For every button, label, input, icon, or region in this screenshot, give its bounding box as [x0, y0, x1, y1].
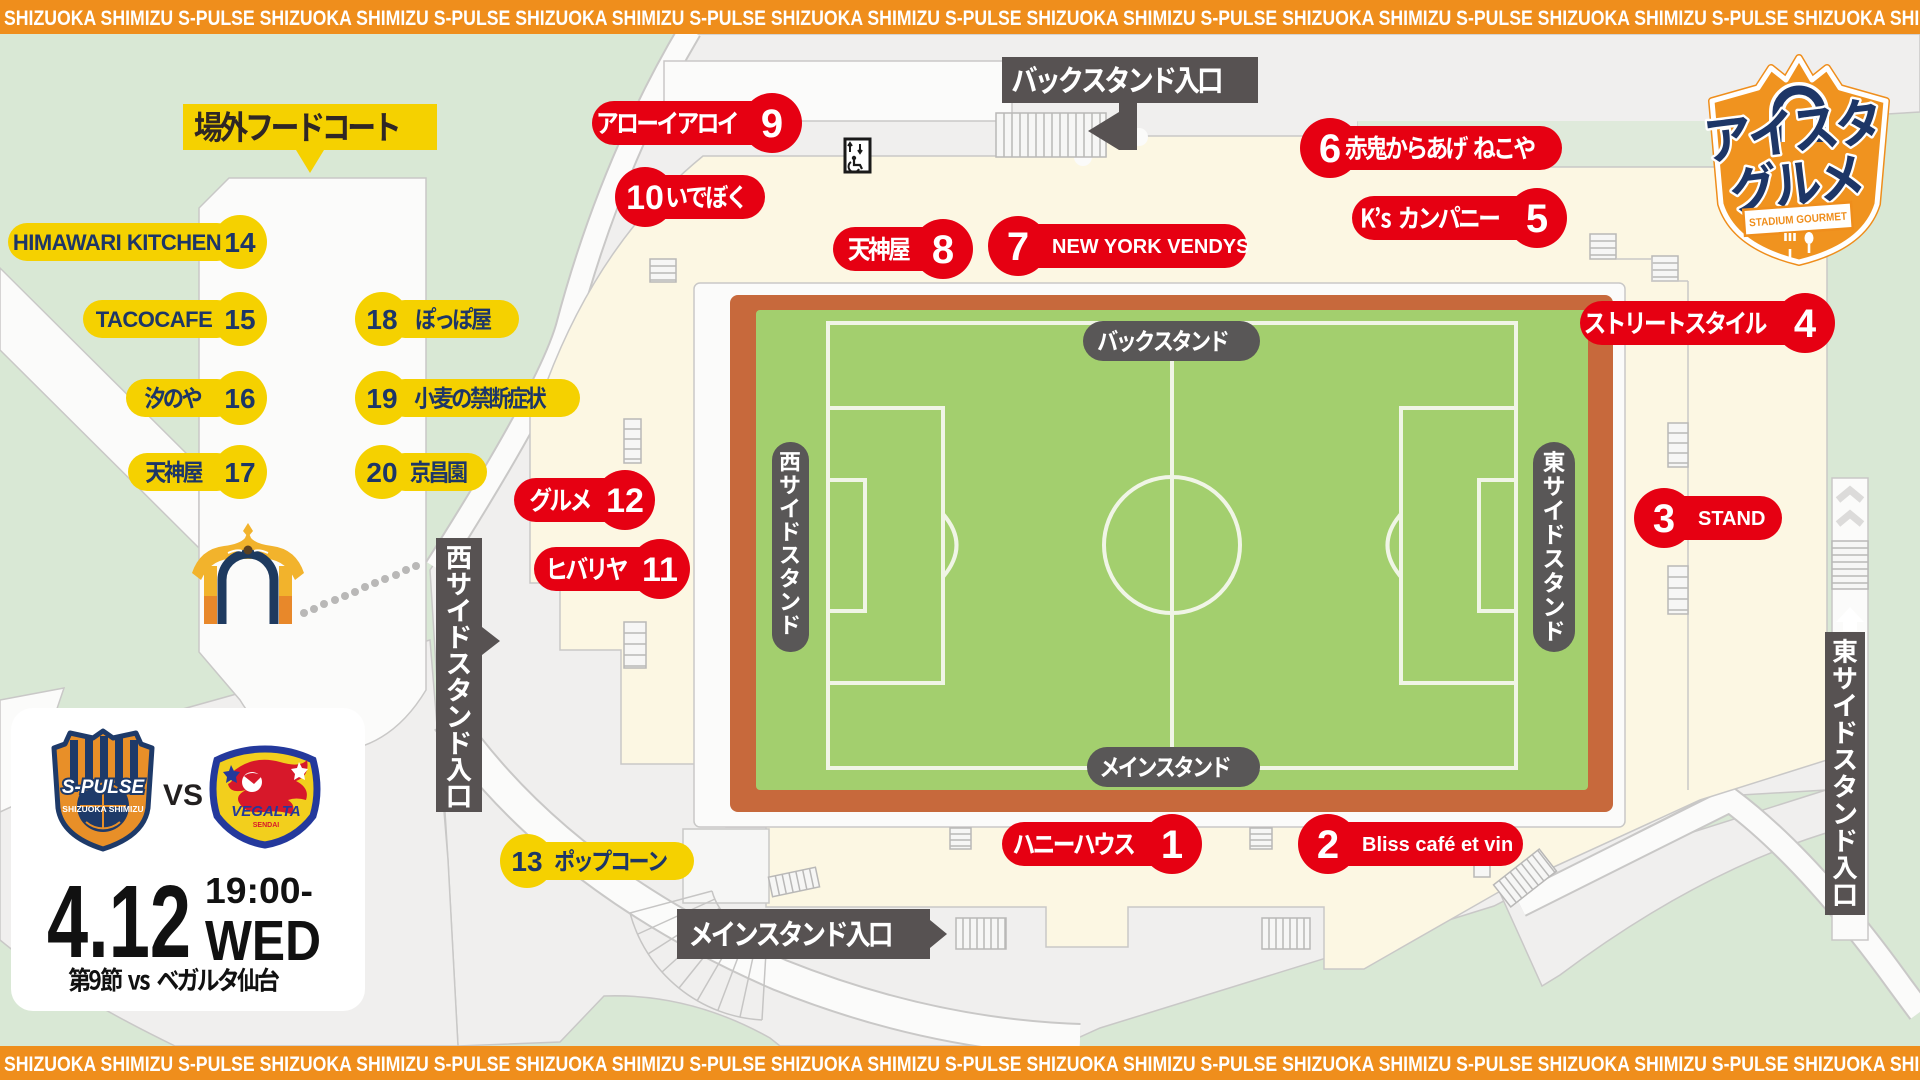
svg-text:Bliss café et vin: Bliss café et vin [1362, 834, 1513, 856]
svg-text:SHIZUOKA SHIMIZU S-PULSE SHIZU: SHIZUOKA SHIMIZU S-PULSE SHIZUOKA SHIMIZ… [4, 7, 1920, 30]
svg-text:18: 18 [366, 304, 397, 335]
svg-text:VEGALTA: VEGALTA [231, 803, 300, 820]
svg-text:19:00-: 19:00- [205, 870, 313, 911]
svg-text:19: 19 [366, 383, 397, 414]
svg-text:HIMAWARI KITCHEN: HIMAWARI KITCHEN [13, 230, 221, 255]
svg-text:10: 10 [626, 179, 664, 217]
svg-text:S-PULSE: S-PULSE [62, 777, 146, 798]
svg-text:8: 8 [932, 228, 954, 272]
svg-text:12: 12 [606, 482, 644, 520]
svg-text:SENDAI: SENDAI [253, 822, 280, 829]
svg-text:16: 16 [224, 383, 255, 414]
svg-text:14: 14 [224, 227, 256, 258]
svg-text:4.12: 4.12 [47, 864, 191, 979]
svg-text:NEW YORK VENDYS: NEW YORK VENDYS [1052, 236, 1249, 258]
svg-text:3: 3 [1653, 497, 1675, 541]
svg-text:4: 4 [1794, 302, 1817, 346]
svg-text:SHIZUOKA SHIMIZU S-PULSE SHIZU: SHIZUOKA SHIMIZU S-PULSE SHIZUOKA SHIMIZ… [4, 1053, 1920, 1076]
svg-text:11: 11 [642, 551, 678, 589]
svg-text:STAND: STAND [1698, 508, 1765, 530]
svg-text:15: 15 [224, 304, 255, 335]
svg-text:20: 20 [366, 457, 397, 488]
svg-text:5: 5 [1526, 197, 1548, 241]
svg-text:6: 6 [1319, 127, 1341, 171]
svg-text:13: 13 [511, 846, 542, 877]
svg-text:SHIZUOKA SHIMIZU: SHIZUOKA SHIMIZU [62, 804, 143, 814]
svg-text:WED: WED [205, 909, 321, 973]
svg-text:1: 1 [1161, 823, 1183, 867]
svg-text:9: 9 [761, 102, 783, 146]
svg-text:TACOCAFE: TACOCAFE [96, 307, 213, 332]
svg-text:2: 2 [1317, 823, 1339, 867]
svg-text:VS: VS [163, 779, 203, 812]
svg-text:7: 7 [1007, 225, 1029, 269]
svg-text:17: 17 [224, 457, 255, 488]
